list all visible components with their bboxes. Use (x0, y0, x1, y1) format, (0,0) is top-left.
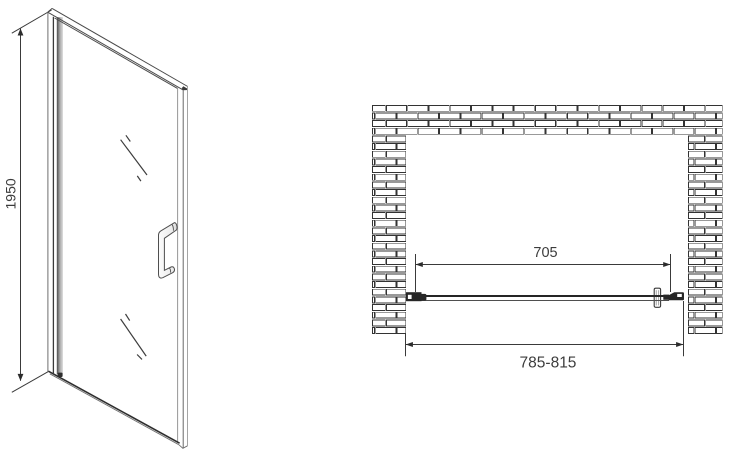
svg-text:705: 705 (533, 245, 557, 261)
svg-text:1950: 1950 (3, 178, 19, 209)
svg-text:785-815: 785-815 (520, 354, 577, 371)
